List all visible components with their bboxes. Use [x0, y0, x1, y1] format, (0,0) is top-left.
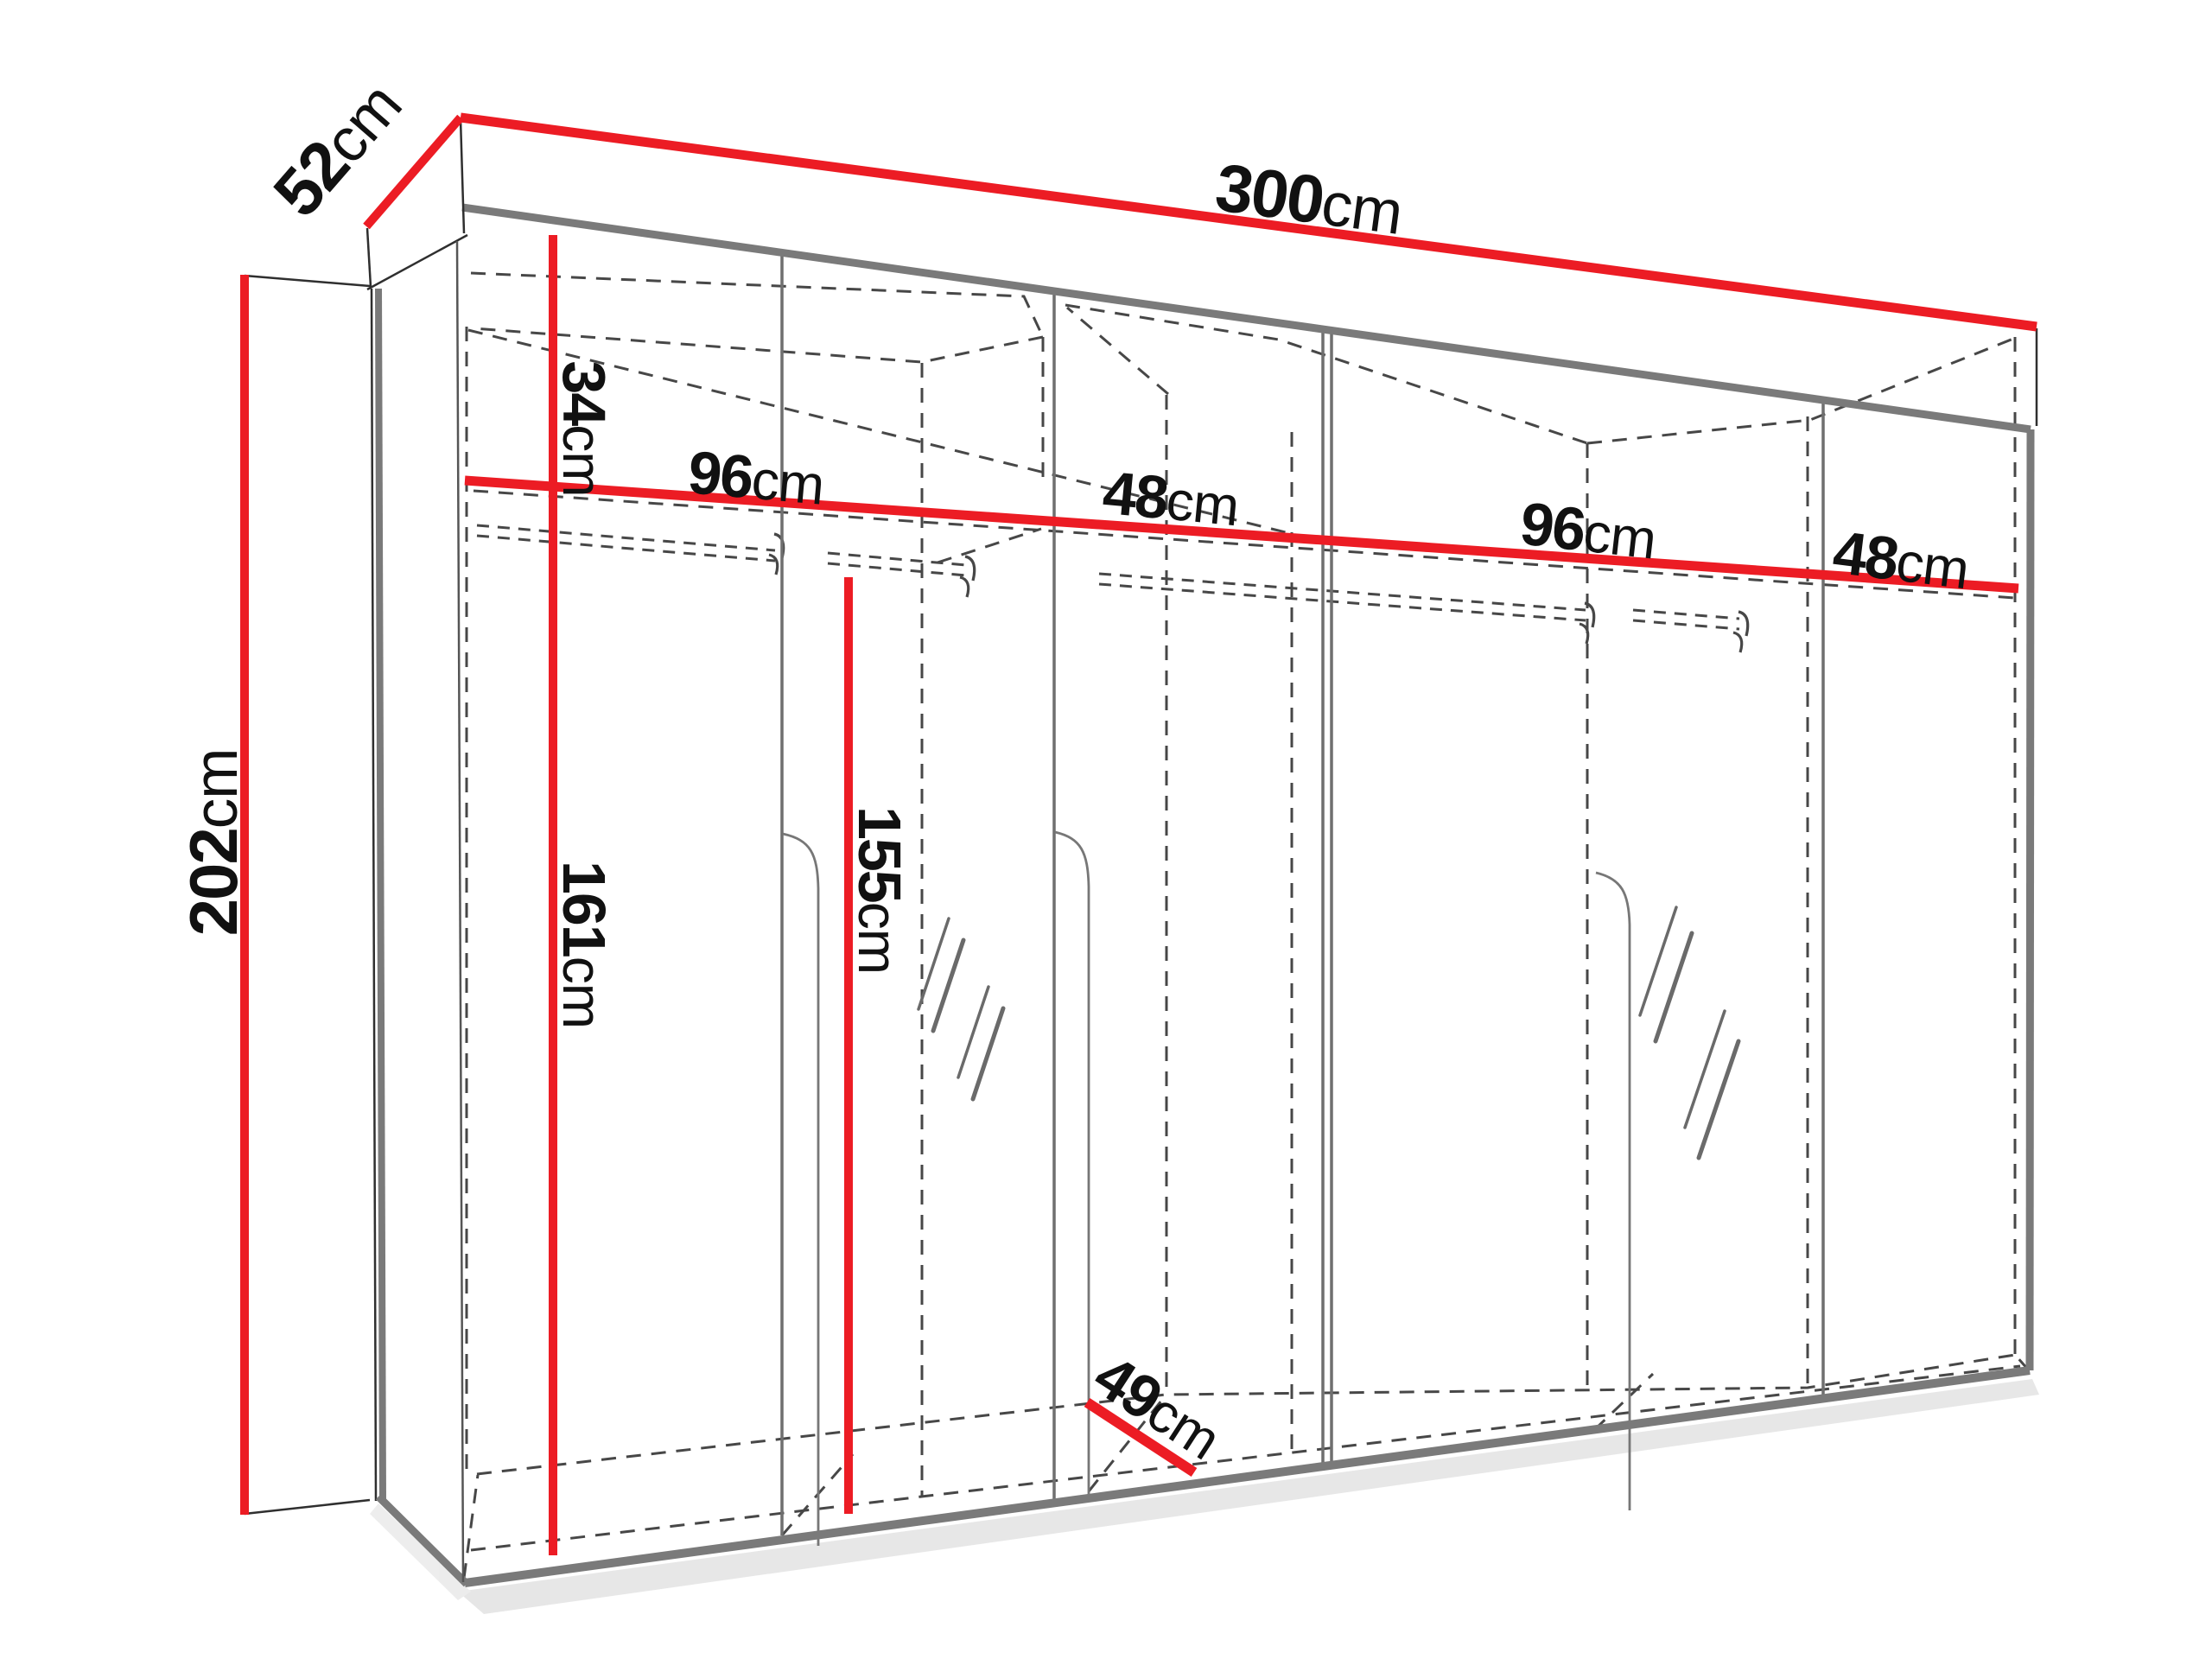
dim-155-value: 155 — [846, 806, 913, 902]
bottom-front-edge — [465, 1370, 2030, 1583]
ceiling-depth-edge-left — [474, 328, 1043, 362]
top-front-edge — [462, 207, 2031, 429]
front-left-edge — [457, 241, 463, 1582]
wardrobe-dimension-diagram: 300cm 52cm 202cm 34cm 96cm 48cm 96cm 48c… — [0, 0, 2212, 1659]
rod-4-top — [1633, 610, 1739, 619]
rod-4-bracket-2 — [1733, 632, 1742, 652]
dim-300-unit: cm — [1318, 169, 1406, 248]
dim-96b-unit: cm — [1580, 501, 1659, 571]
dim-48b-value: 48 — [1829, 518, 1901, 593]
dim-202-unit: cm — [182, 749, 251, 829]
dim-202-label: 202cm — [180, 749, 247, 937]
rod-3-bracket-2 — [1580, 624, 1588, 644]
mirror-right-slash-3 — [1685, 1011, 1725, 1128]
floor-depth-diag-left — [464, 1475, 478, 1578]
dim-48b-unit: cm — [1893, 531, 1972, 601]
dim-202-value: 202 — [175, 829, 251, 936]
side-panel-front-band — [378, 289, 383, 1500]
shadow-shape-left — [370, 1503, 471, 1600]
ceiling-back-edge-right — [1587, 339, 2013, 443]
rod-3-top — [1099, 574, 1586, 610]
rod-1-bracket-2 — [769, 555, 778, 575]
door-divisions — [782, 252, 1823, 1535]
dim-161-value: 161 — [550, 861, 618, 957]
rod-4-bottom — [1633, 620, 1739, 629]
dim-96b-value: 96 — [1516, 489, 1587, 563]
dim-96a-value: 96 — [685, 438, 754, 511]
right-front-edge — [2030, 429, 2031, 1370]
dim-48a-label: 48cm — [1100, 462, 1241, 536]
rod-1-bottom — [477, 536, 775, 561]
rod-1-top — [477, 525, 775, 550]
dim-300-value: 300 — [1211, 149, 1328, 238]
mirror-right-slash-4 — [1699, 1041, 1738, 1158]
ceiling-corner-diagonal — [1067, 308, 1168, 394]
dim-34-label: 34cm — [554, 360, 614, 496]
mirror-hatches — [918, 907, 1738, 1158]
rod-3-bottom — [1099, 584, 1586, 620]
dim-161-unit: cm — [551, 957, 613, 1028]
shelf-depth-diagonal — [938, 529, 1041, 563]
ext-52-upper — [461, 119, 464, 233]
ext-202-bottom — [245, 1500, 370, 1514]
dim-34-value: 34 — [550, 360, 618, 424]
rod-4-bracket — [1738, 612, 1748, 636]
dimension-lines — [245, 118, 2037, 1555]
shadow-shape — [458, 1379, 2039, 1614]
ext-52-lower — [367, 228, 371, 287]
dim-34-unit: cm — [551, 424, 613, 496]
dim-96a-label: 96cm — [686, 442, 827, 513]
dim-155-unit: cm — [847, 902, 909, 974]
dim-48a-unit: cm — [1164, 469, 1242, 538]
dim-96a-unit: cm — [749, 448, 826, 517]
side-panel-outer-line — [372, 289, 376, 1501]
ext-202-top — [245, 276, 370, 286]
dim-155-label: 155cm — [849, 806, 910, 974]
rod-2-bottom — [828, 563, 966, 575]
side-panel-bottom-edge — [378, 1497, 467, 1584]
floor-front-edge — [471, 1366, 2020, 1550]
extension-lines — [245, 119, 2037, 1514]
dim-48a-value: 48 — [1100, 459, 1170, 532]
dim-161-label: 161cm — [554, 861, 614, 1028]
rod-2-bracket-2 — [960, 577, 969, 597]
side-panel-top-depth-edge — [367, 235, 467, 289]
rod-2-bracket — [965, 556, 975, 581]
